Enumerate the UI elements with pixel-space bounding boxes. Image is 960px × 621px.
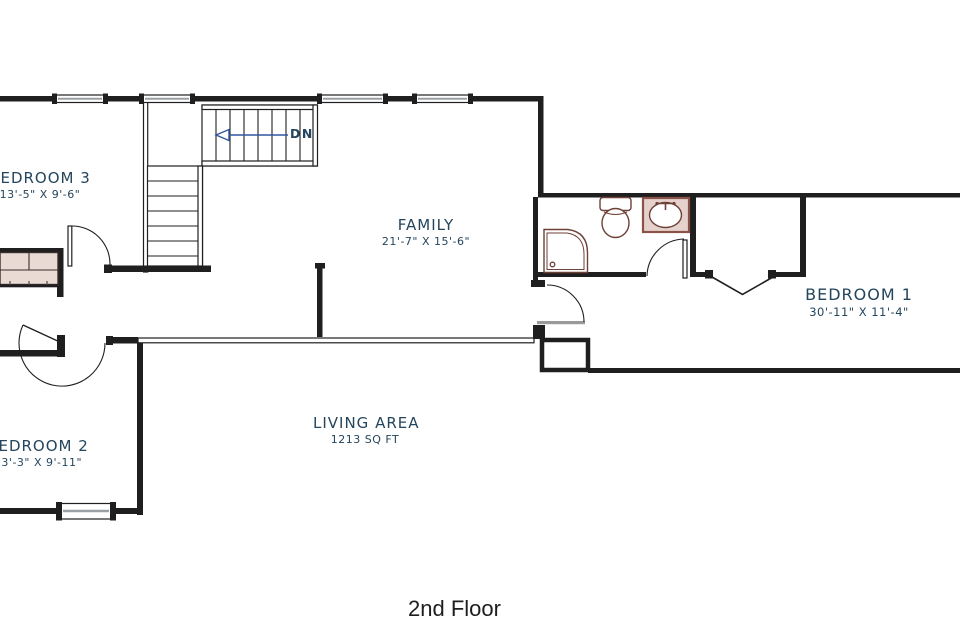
closet-wardrobe — [0, 253, 58, 288]
staircase — [148, 105, 318, 266]
bathroom-fixtures — [544, 198, 689, 273]
sink-icon — [643, 198, 689, 232]
shower-icon — [544, 230, 588, 273]
window — [56, 502, 116, 521]
window — [412, 94, 473, 105]
bifold-closet-door — [712, 277, 773, 295]
chase-box — [542, 340, 588, 370]
window — [317, 94, 388, 105]
door-swing-bathroom — [647, 239, 687, 278]
toilet-icon — [600, 198, 631, 238]
floor-plan-canvas: BEDROOM 3 13'-5" X 9'-6" FAMILY 21'-7" X… — [0, 0, 960, 621]
interior-walls — [0, 101, 806, 370]
door-swing-corridor — [547, 285, 584, 322]
doors — [19, 226, 773, 386]
floor-plan-drawing — [0, 0, 960, 621]
window — [139, 94, 195, 105]
window — [52, 94, 108, 105]
door-swing-bedroom3 — [68, 226, 110, 266]
half-wall — [537, 321, 585, 324]
